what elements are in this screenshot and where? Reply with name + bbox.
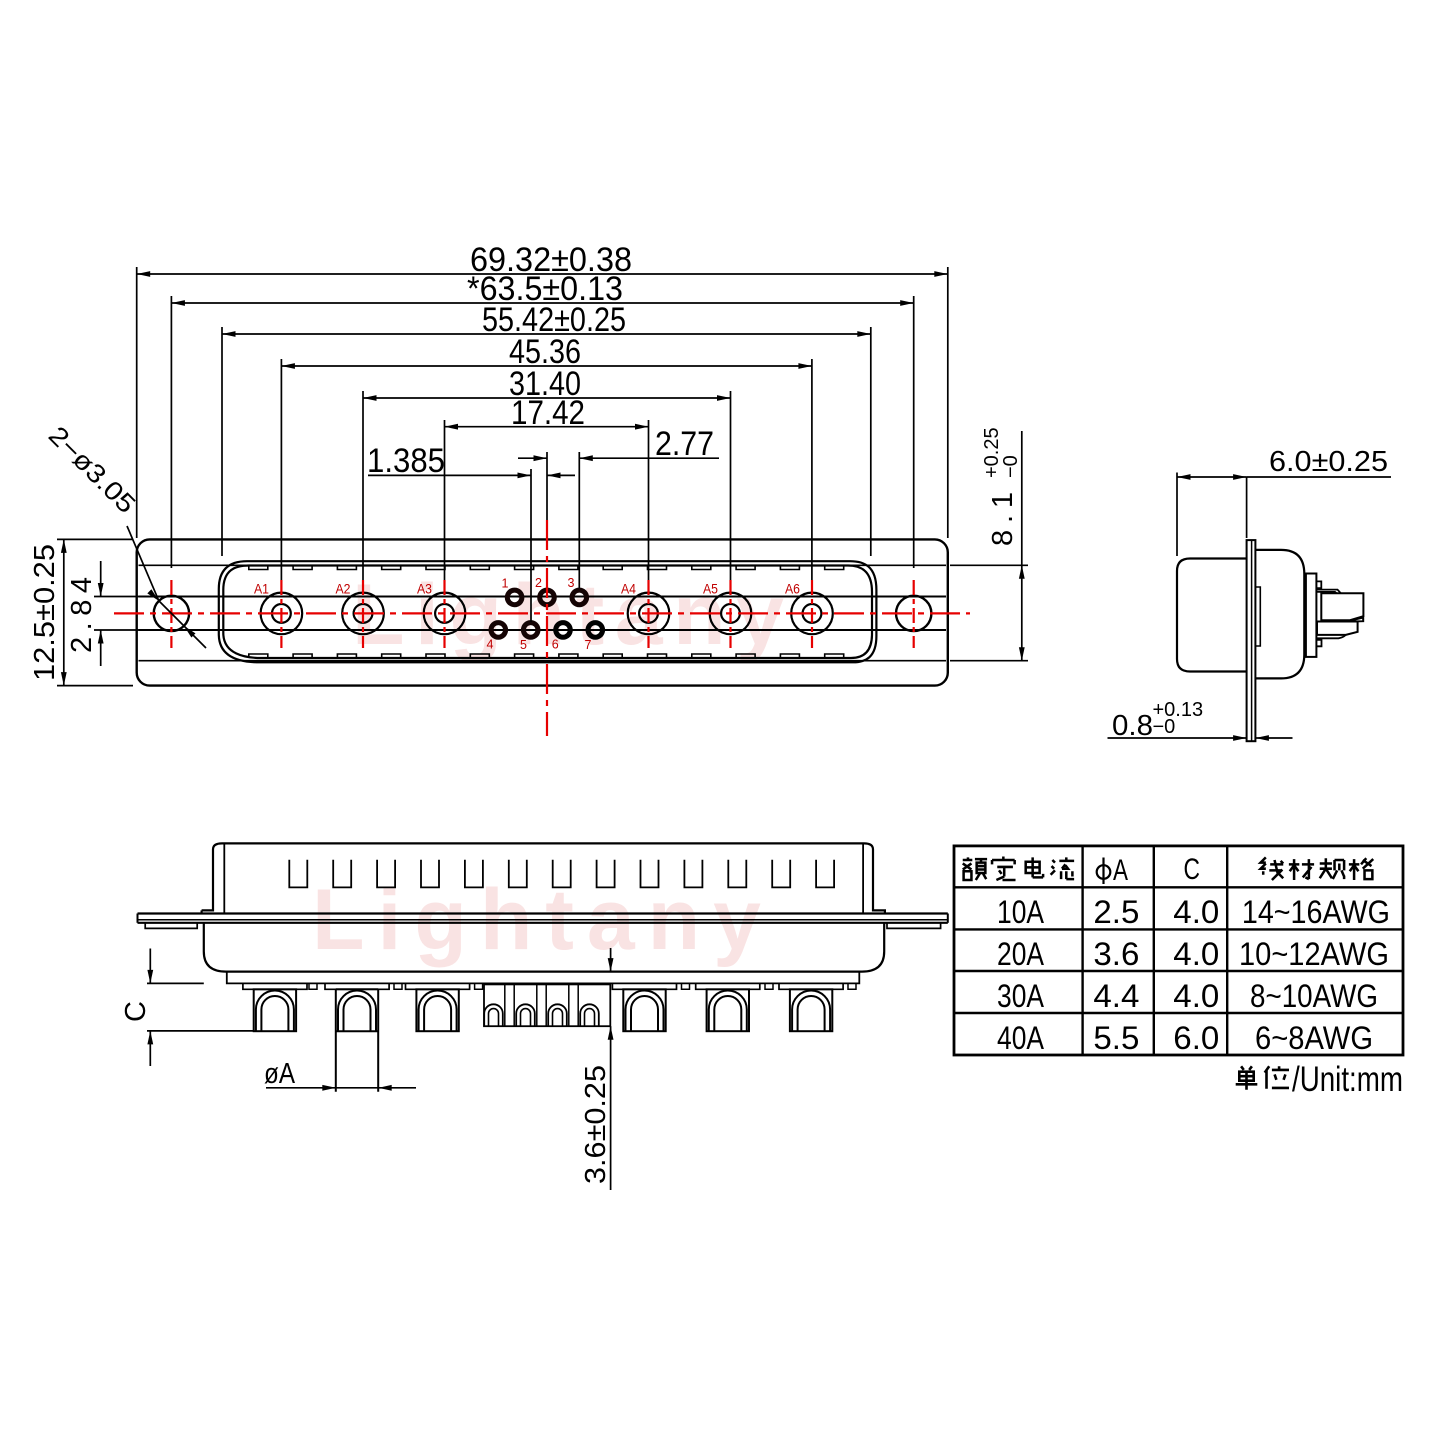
svg-text:4.4: 4.4 — [1093, 978, 1139, 1014]
svg-text:3.6: 3.6 — [1093, 936, 1139, 972]
svg-text:10~12AWG: 10~12AWG — [1239, 936, 1389, 972]
svg-text:A1: A1 — [254, 582, 269, 597]
svg-text:40A: 40A — [997, 1020, 1045, 1056]
svg-text:/Unit:mm: /Unit:mm — [1292, 1060, 1403, 1099]
svg-text:30A: 30A — [997, 978, 1045, 1014]
svg-text:20A: 20A — [997, 936, 1045, 972]
svg-text:−0: −0 — [1000, 455, 1022, 478]
svg-text:8.1: 8.1 — [987, 492, 1019, 546]
svg-text:1.385: 1.385 — [367, 442, 445, 480]
svg-text:A: A — [1113, 854, 1128, 887]
svg-text:3: 3 — [568, 576, 575, 590]
svg-text:17.42: 17.42 — [511, 394, 585, 432]
svg-text:5: 5 — [520, 638, 527, 652]
svg-text:6.0±0.25: 6.0±0.25 — [1269, 446, 1388, 478]
svg-text:2: 2 — [535, 576, 542, 590]
svg-text:4.0: 4.0 — [1173, 936, 1219, 972]
svg-text:A6: A6 — [785, 582, 800, 597]
svg-text:12.5±0.25: 12.5±0.25 — [29, 544, 61, 681]
svg-text:6~8AWG: 6~8AWG — [1255, 1020, 1373, 1056]
svg-text:C: C — [120, 1001, 152, 1022]
svg-text:4: 4 — [487, 638, 494, 652]
svg-text:6.0: 6.0 — [1173, 1020, 1219, 1056]
svg-text:A2: A2 — [336, 582, 351, 597]
svg-text:2.84: 2.84 — [66, 577, 98, 653]
svg-text:2.5: 2.5 — [1093, 894, 1139, 930]
svg-text:A5: A5 — [703, 582, 718, 597]
svg-text:0.8: 0.8 — [1112, 710, 1153, 742]
svg-text:A4: A4 — [621, 582, 636, 597]
svg-text:øA: øA — [264, 1058, 296, 1090]
svg-text:8~10AWG: 8~10AWG — [1250, 978, 1378, 1014]
svg-text:A3: A3 — [417, 582, 432, 597]
svg-text:14~16AWG: 14~16AWG — [1242, 894, 1390, 930]
svg-text:5.5: 5.5 — [1093, 1020, 1139, 1056]
svg-text:6: 6 — [552, 638, 559, 652]
svg-text:10A: 10A — [997, 894, 1045, 930]
svg-text:1: 1 — [502, 577, 509, 591]
svg-text:−0: −0 — [1153, 716, 1176, 738]
svg-text:C: C — [1184, 853, 1201, 886]
svg-text:4.0: 4.0 — [1173, 894, 1219, 930]
svg-text:4.0: 4.0 — [1173, 978, 1219, 1014]
svg-text:7: 7 — [585, 638, 592, 652]
svg-text:2.77: 2.77 — [655, 425, 714, 463]
svg-text:3.6±0.25: 3.6±0.25 — [580, 1065, 612, 1184]
